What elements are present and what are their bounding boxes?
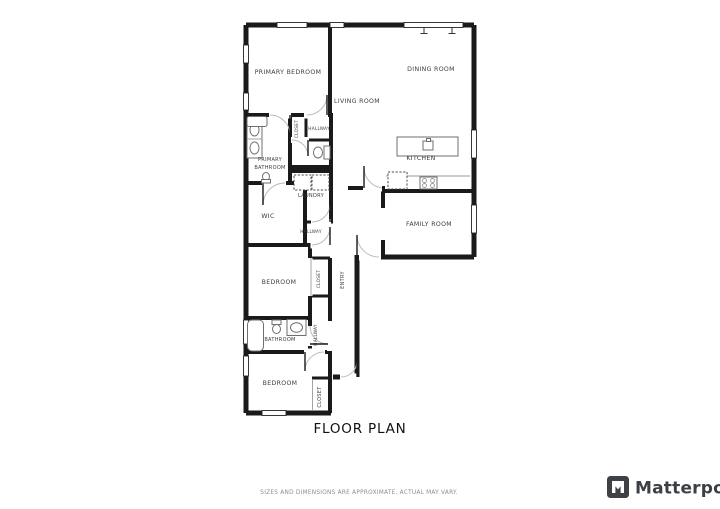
room-label-entry: ENTRY <box>340 271 346 289</box>
floor-plan-title: FLOOR PLAN <box>313 421 406 437</box>
toilet-tank-icon <box>324 146 330 159</box>
room-label-closet-2: CLOSET <box>316 270 322 288</box>
room-label-bedroom-2: BEDROOM <box>263 380 298 387</box>
room-label-hallway-3: HALLWAY <box>313 324 319 346</box>
dimensions-disclaimer: SIZES AND DIMENSIONS ARE APPROXIMATE, AC… <box>260 490 457 496</box>
room-label-hallway-2: HALLWAY <box>300 229 322 235</box>
room-label-closet-1: CLOSET <box>294 120 300 138</box>
window-tick-marks <box>421 28 456 34</box>
island-sink-icon <box>423 141 433 150</box>
room-label-primary-bathroom-line2: BATHROOM <box>254 165 285 171</box>
room-label-laundry: LAUNDRY <box>298 193 325 199</box>
windows-layer <box>244 23 477 416</box>
room-label-bathroom: BATHROOM <box>264 337 295 343</box>
room-label-hallway-1: HALLWAY <box>308 126 330 132</box>
room-label-wic: WIC <box>261 213 274 220</box>
bathtub-icon <box>248 320 264 351</box>
matterport-brand: Matterport <box>607 476 720 499</box>
exterior-walls-layer <box>246 25 474 413</box>
laundry-counter-block <box>291 165 330 173</box>
room-label-family-room: FAMILY ROOM <box>406 221 452 228</box>
refrigerator-icon <box>388 172 407 189</box>
doors-layer <box>263 95 382 411</box>
floor-plan-drawing: PRIMARY BEDROOM DINING ROOM LIVING ROOM … <box>0 0 720 509</box>
primary-shower <box>247 117 267 127</box>
matterport-logo-icon <box>607 476 629 498</box>
toilet-bowl-icon <box>314 147 323 158</box>
brand-name: Matterport <box>635 479 720 499</box>
bath2-sink-icon <box>291 323 303 333</box>
floor-plan-page: PRIMARY BEDROOM DINING ROOM LIVING ROOM … <box>0 0 720 509</box>
dryer-icon <box>312 175 329 190</box>
room-label-bedroom-1: BEDROOM <box>262 279 297 286</box>
room-label-dining-room: DINING ROOM <box>407 66 455 73</box>
interior-walls-layer <box>246 25 474 413</box>
primary-sink-2-icon <box>250 142 259 154</box>
washer-icon <box>294 175 311 190</box>
room-label-closet-3: CLOSET <box>317 386 323 408</box>
bath2-toilet-bowl-icon <box>273 325 281 334</box>
bath2-toilet-tank-icon <box>272 320 281 325</box>
stove-icon <box>420 177 437 189</box>
room-label-living-room: LIVING ROOM <box>334 98 380 105</box>
room-label-kitchen: KITCHEN <box>406 155 435 162</box>
room-label-primary-bedroom: PRIMARY BEDROOM <box>255 69 322 76</box>
island-faucet-icon <box>427 139 431 142</box>
room-label-primary-bathroom-line1: PRIMARY <box>258 157 283 163</box>
